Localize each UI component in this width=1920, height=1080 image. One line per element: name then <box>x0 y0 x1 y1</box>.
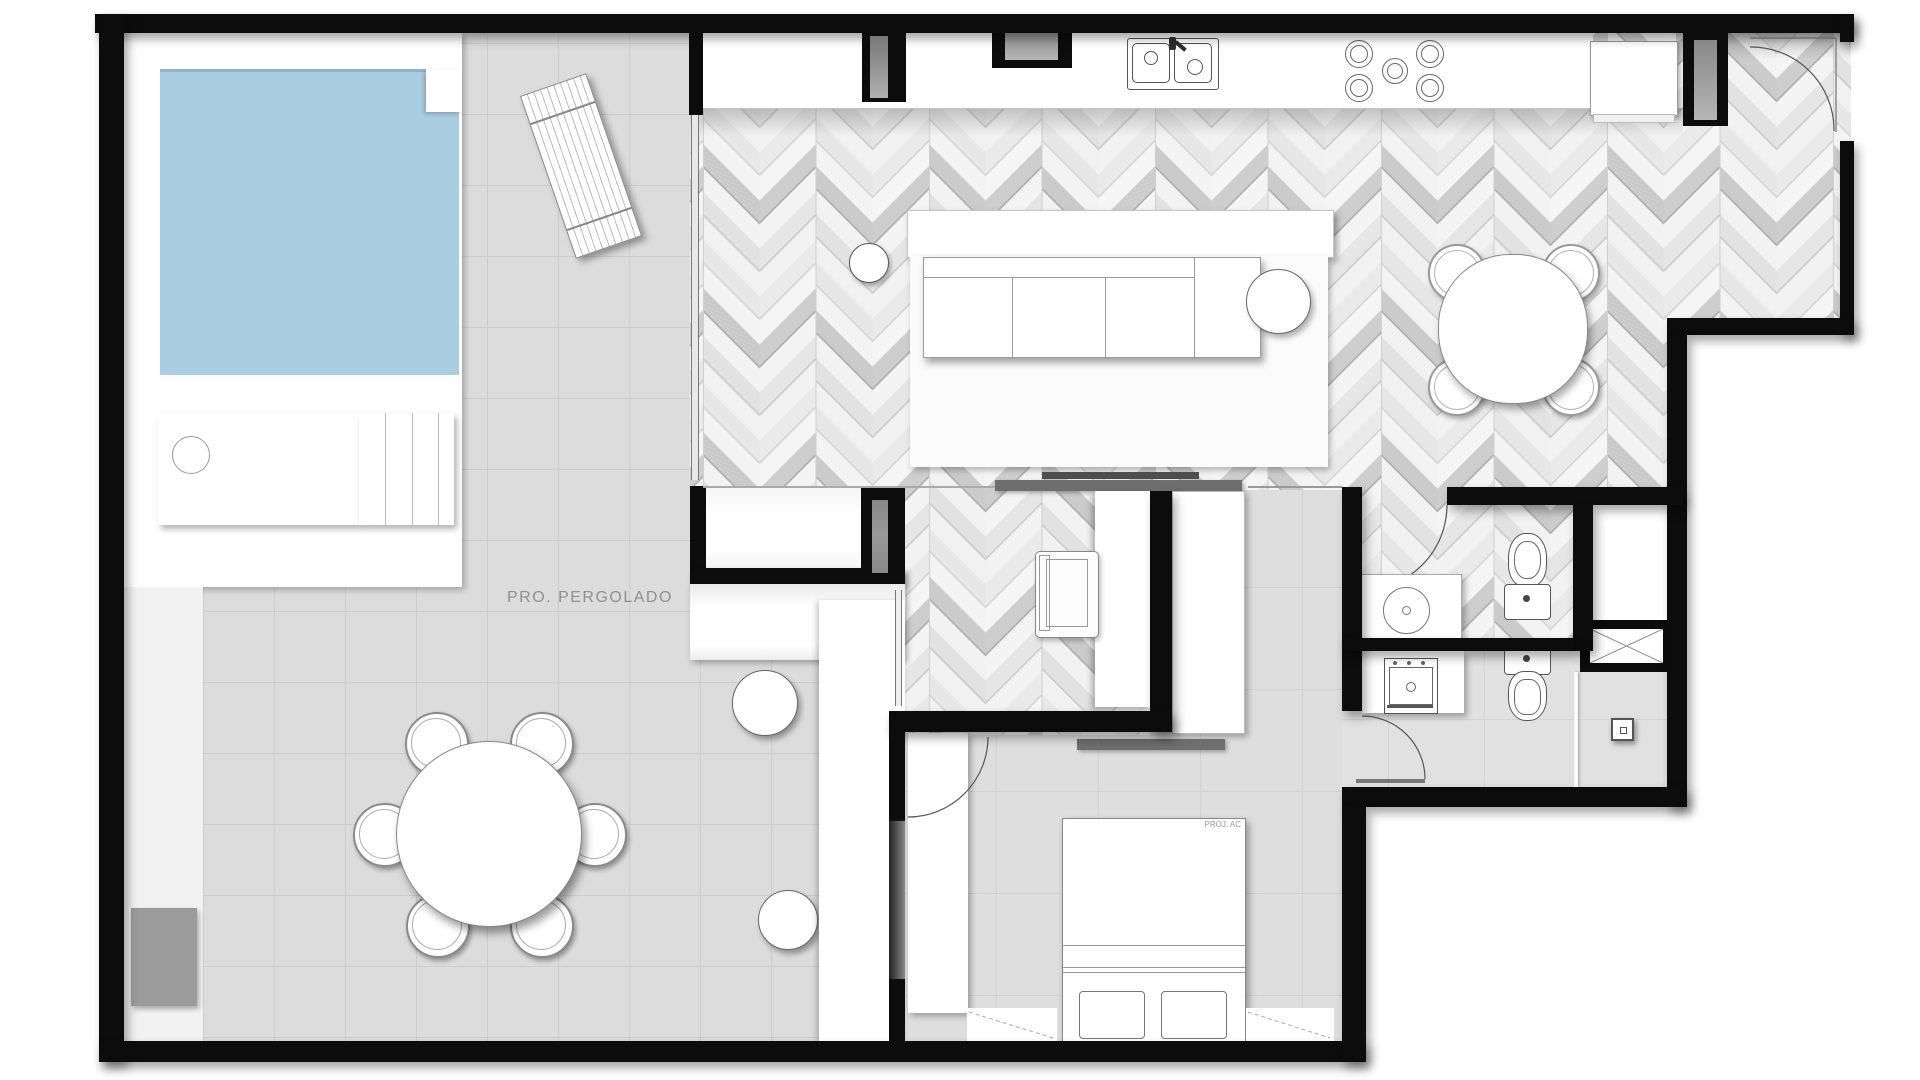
svg-text:PROJ. AC: PROJ. AC <box>1205 820 1242 829</box>
